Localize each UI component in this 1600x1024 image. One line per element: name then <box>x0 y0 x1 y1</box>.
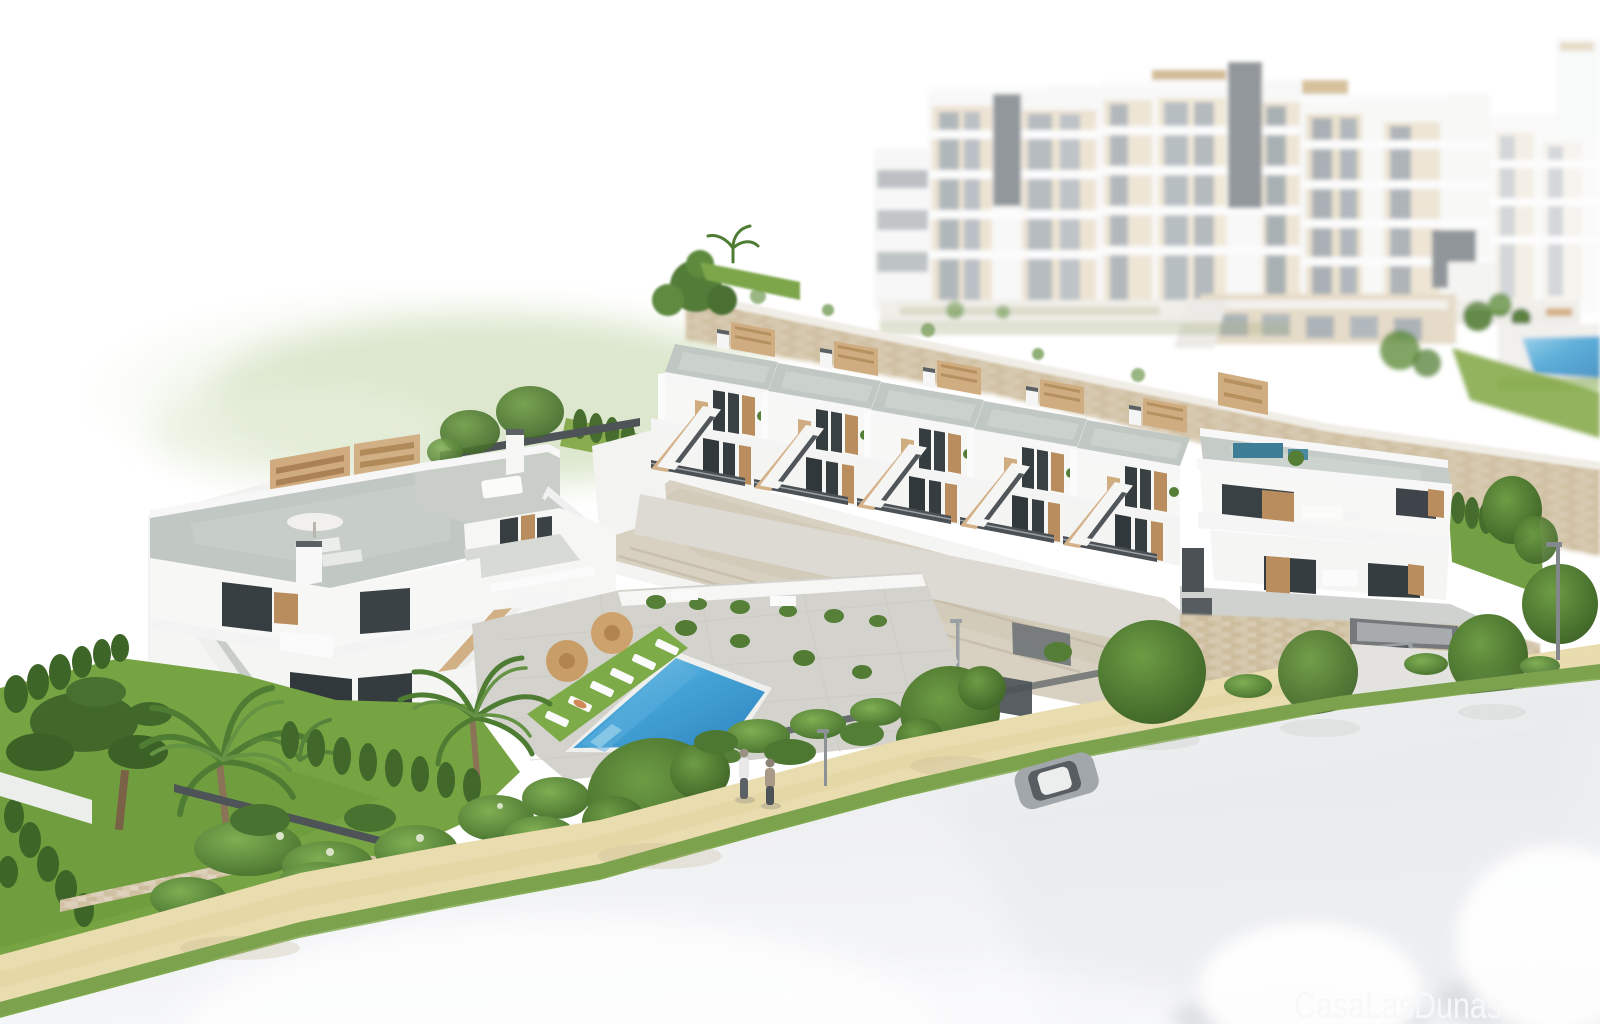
svg-text:CasaLasDunas: CasaLasDunas <box>1294 985 1502 1024</box>
